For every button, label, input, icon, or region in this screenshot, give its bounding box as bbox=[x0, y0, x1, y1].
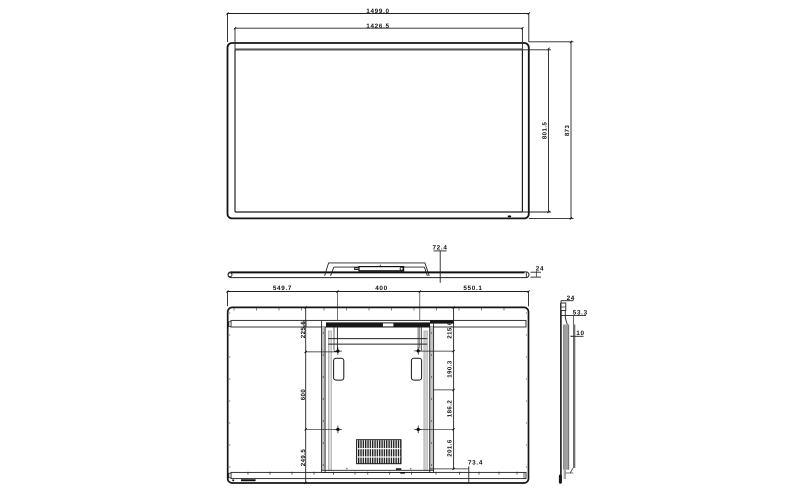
svg-text:600: 600 bbox=[300, 389, 307, 401]
svg-text:186.2: 186.2 bbox=[447, 400, 454, 418]
svg-text:873: 873 bbox=[564, 124, 571, 136]
svg-text:550.1: 550.1 bbox=[463, 285, 482, 292]
svg-text:249.5: 249.5 bbox=[300, 449, 307, 467]
svg-text:201.6: 201.6 bbox=[447, 439, 454, 457]
svg-text:225.6: 225.6 bbox=[300, 321, 307, 339]
svg-text:73.4: 73.4 bbox=[468, 460, 483, 467]
svg-text:1426.5: 1426.5 bbox=[366, 23, 389, 30]
svg-text:549.7: 549.7 bbox=[273, 285, 292, 292]
svg-text:400: 400 bbox=[375, 285, 388, 292]
svg-text:215.6: 215.6 bbox=[447, 321, 454, 339]
svg-text:72.4: 72.4 bbox=[432, 244, 447, 251]
svg-text:1499.0: 1499.0 bbox=[366, 8, 389, 15]
svg-text:190.3: 190.3 bbox=[447, 360, 454, 378]
svg-text:801.5: 801.5 bbox=[541, 121, 548, 139]
svg-text:24: 24 bbox=[536, 265, 544, 272]
svg-text:10: 10 bbox=[576, 330, 584, 337]
